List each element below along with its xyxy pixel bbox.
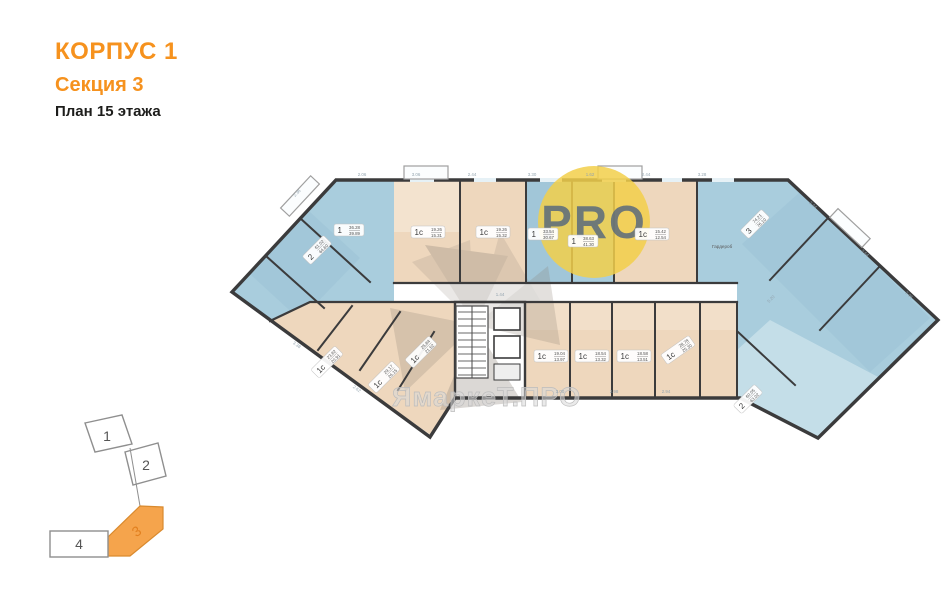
pro-logo: PRO bbox=[538, 166, 650, 278]
room-shade bbox=[394, 180, 460, 232]
apartment-label[interactable]: 1с18.5413.32 bbox=[575, 350, 609, 362]
apartment-area-living: 15.31 bbox=[431, 233, 443, 238]
apartment-area-total: 18.54 bbox=[595, 351, 607, 356]
apartment-label[interactable]: 1с15.4212.54 bbox=[635, 228, 669, 240]
apartment-area-living: 39.89 bbox=[349, 231, 361, 236]
minimap-section-2-label: 2 bbox=[142, 457, 150, 473]
apartment-label[interactable]: 1с19.2615.31 bbox=[411, 226, 445, 238]
apartment-type: 1 bbox=[532, 230, 537, 239]
balcony bbox=[404, 166, 448, 179]
dimension-mark: 3.30 bbox=[528, 172, 537, 177]
page: КОРПУС 1 Секция 3 План 15 этажа bbox=[0, 0, 941, 600]
apartment-type: 1с bbox=[415, 228, 423, 237]
dimension-mark: 2.94 bbox=[662, 389, 671, 394]
apartment-type: 1с bbox=[579, 352, 587, 361]
dimension-mark: 3.28 bbox=[698, 172, 707, 177]
minimap-section-3[interactable]: 3 bbox=[108, 506, 163, 556]
apartment-type: 1с bbox=[480, 228, 488, 237]
apartment-label[interactable]: 1с19.2615.32 bbox=[476, 226, 510, 238]
dimension-mark: 1.44 bbox=[496, 292, 505, 297]
apartment-area-living: 13.97 bbox=[554, 357, 566, 362]
minimap-section-2[interactable]: 2 bbox=[125, 443, 166, 485]
apartment-area-total: 19.04 bbox=[554, 351, 566, 356]
apartment-area-living: 15.32 bbox=[496, 233, 508, 238]
minimap-section-4-label: 4 bbox=[75, 536, 83, 552]
elevator bbox=[494, 308, 520, 330]
minimap: 1 2 3 4 bbox=[50, 415, 166, 557]
apartment-type: 1с bbox=[639, 230, 647, 239]
elevator bbox=[494, 336, 520, 358]
apartment-area-living: 13.51 bbox=[637, 357, 649, 362]
dimension-mark: 1.62 bbox=[586, 172, 595, 177]
apartment-label[interactable]: 1с18.5813.51 bbox=[617, 350, 651, 362]
minimap-section-1-label: 1 bbox=[103, 428, 111, 444]
apartment-area-total: 19.26 bbox=[431, 227, 443, 232]
apartment-area-living: 12.54 bbox=[655, 235, 667, 240]
apartment-label[interactable]: 138.6341.30 bbox=[568, 235, 598, 247]
dimension-mark: 2.44 bbox=[642, 172, 651, 177]
dimension-mark: 2.06 bbox=[358, 172, 367, 177]
apartment-type: 1с bbox=[621, 352, 629, 361]
apartment-area-total: 15.42 bbox=[655, 229, 667, 234]
apartment-area-total: 36.28 bbox=[349, 225, 361, 230]
minimap-section-4[interactable]: 4 bbox=[50, 531, 108, 557]
apartment-area-total: 18.58 bbox=[637, 351, 649, 356]
minimap-section-1[interactable]: 1 bbox=[85, 415, 132, 452]
stairwell bbox=[456, 306, 520, 380]
apartment-area-living: 41.30 bbox=[583, 242, 595, 247]
apartment-label[interactable]: 1с19.0413.97 bbox=[534, 350, 568, 362]
apartment-type: 1 bbox=[572, 237, 577, 246]
apartment-area-total: 19.26 bbox=[496, 227, 508, 232]
apartment-type: 1 bbox=[338, 226, 343, 235]
dimension-mark: 2.98 bbox=[610, 389, 619, 394]
apartment-type: 1с bbox=[538, 352, 546, 361]
apartment-label[interactable]: 136.2839.89 bbox=[334, 224, 364, 236]
apartment-area-living: 13.32 bbox=[595, 357, 607, 362]
apartment-area-total: 33.54 bbox=[543, 229, 555, 234]
apartment-area-total: 38.63 bbox=[583, 236, 595, 241]
apartment-area-living: 30.67 bbox=[543, 235, 555, 240]
apartment-label[interactable]: 133.5430.67 bbox=[528, 228, 558, 240]
dimension-mark: 3.00 bbox=[556, 389, 565, 394]
dimension-mark: 3.06 bbox=[412, 172, 421, 177]
shaft bbox=[494, 364, 520, 380]
floor-plan: PRO ЯмаркеТ.ПРО 261.0264.60136.2839.891с… bbox=[0, 0, 941, 600]
room-label: Гардероб bbox=[712, 244, 733, 249]
watermark-text: ЯмаркеТ.ПРО bbox=[392, 382, 581, 412]
dimension-mark: 2.44 bbox=[468, 172, 477, 177]
